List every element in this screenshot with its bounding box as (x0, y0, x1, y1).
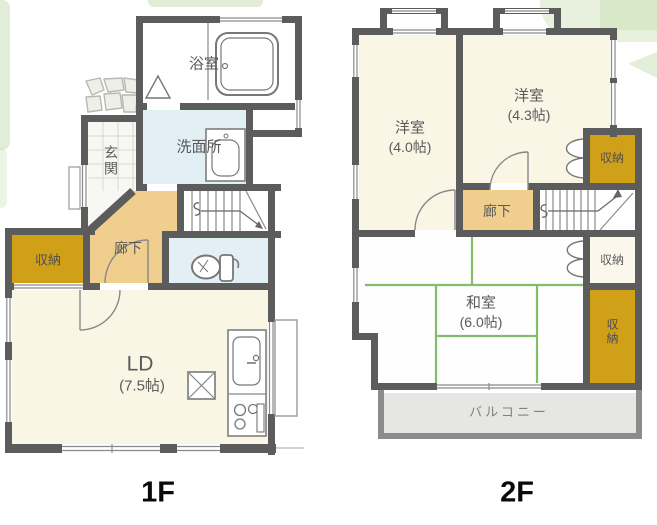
label-bathroom: 浴室 (189, 57, 219, 72)
label-western-left-size: (4.0帖) (389, 140, 432, 154)
bathtub-icon (216, 33, 278, 95)
label-ld-name: LD (127, 354, 154, 375)
kitchen-counter (228, 330, 266, 436)
washroom-bay (250, 107, 297, 133)
floorplan-drawing (0, 0, 657, 525)
stepping-stones-icon (86, 78, 138, 112)
label-western-right-name: 洋室 (514, 89, 544, 104)
floor2-label: 2F (500, 479, 534, 508)
label-storage-upper: 収納 (600, 152, 624, 164)
label-ld-size: (7.5帖) (119, 379, 165, 394)
floorplan-canvas: 浴室 洗面所 玄関 廊下 収納 LD (7.5帖) 1F 洋室 (4.0帖) 洋… (0, 0, 657, 525)
floor2-plan (352, 8, 642, 439)
label-hallway-1f: 廊下 (114, 241, 142, 255)
floor1-label: 1F (141, 479, 175, 508)
entrance-door-step (69, 167, 80, 209)
label-storage-1f: 収納 (35, 254, 61, 267)
label-japanese-name: 和室 (466, 296, 496, 311)
window-bay-kitchen (275, 320, 297, 416)
dining-table-icon (188, 372, 215, 399)
label-western-right-size: (4.3帖) (508, 108, 551, 122)
label-japanese-size: (6.0帖) (460, 315, 503, 329)
label-storage-middle: 収納 (600, 254, 624, 266)
label-balcony: バルコニー (469, 406, 549, 419)
label-hallway-2f: 廊下 (483, 204, 511, 218)
kitchen-sink-icon (233, 337, 260, 385)
label-entrance: 玄関 (104, 145, 118, 177)
label-storage-lower: 収納 (606, 318, 618, 346)
label-western-left-name: 洋室 (395, 121, 425, 136)
label-washroom: 洗面所 (176, 140, 221, 155)
